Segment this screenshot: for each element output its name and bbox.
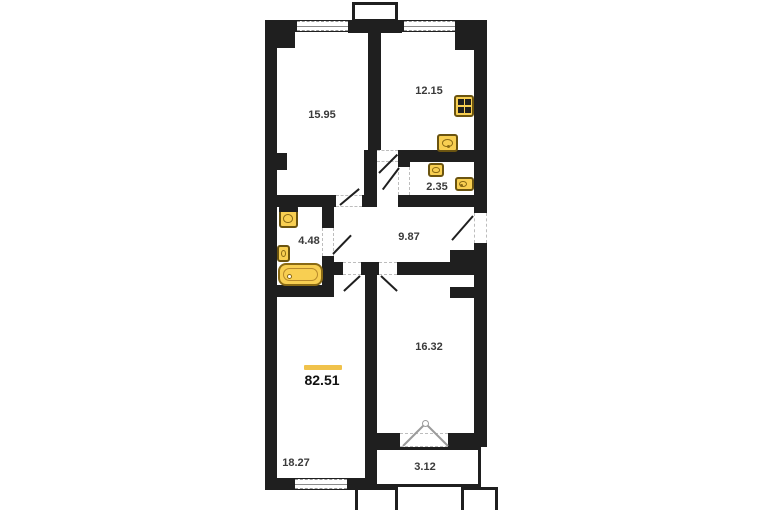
wall-living-kitchen [368,32,381,150]
bathtub-icon [278,263,323,286]
room-area-label-wc: 2.35 [426,181,447,193]
parapet-box-bottom-left [355,487,398,510]
stove-icon [454,95,474,117]
room-area-label-kitchen: 12.15 [415,85,443,97]
kitchen-sink-icon [437,134,458,152]
toilet-icon [277,245,290,262]
wall-vestibule-stub [450,250,474,263]
parapet-box-bottom-right [461,487,498,510]
parapet-box-top [352,2,398,22]
floor-plan: 15.95 12.15 2.35 4.48 9.87 16.32 18.27 3… [0,0,770,510]
window-bedroom2 [295,479,347,489]
wall-wc-bottom [398,195,474,207]
door-leaf-entrance [451,215,474,240]
total-area-accent-line [304,365,342,370]
wall-shaft [450,287,474,298]
wall-left [265,20,277,490]
wc-toilet-icon [455,177,474,191]
door-opening-bedroom [379,262,397,275]
room-area-label-bedroom2: 18.27 [282,457,310,469]
door-opening-wc [398,167,410,195]
window-kitchen [404,21,455,31]
total-area-label: 82.51 [304,372,339,388]
room-area-label-balcony: 3.12 [414,461,435,473]
wall-left-pilaster [265,153,287,170]
door-leaf-bathroom [332,235,351,255]
room-area-label-living: 15.95 [308,109,336,121]
room-area-label-bedroom: 16.32 [415,341,443,353]
wall-bathroom-bottom [265,285,334,297]
door-opening-entrance [474,213,487,243]
room-area-label-hallway: 9.87 [398,231,419,243]
door-opening-bedroom2 [343,262,361,275]
window-living [297,21,348,31]
wall-wc-top [398,150,474,162]
door-leaf-bedroom2 [343,275,360,291]
room-area-label-bathroom: 4.48 [298,235,319,247]
balcony-door-handle [422,420,429,427]
door-leaf-bedroom [380,275,397,291]
washbasin-icon [279,206,298,228]
wc-sink-icon [428,163,444,177]
